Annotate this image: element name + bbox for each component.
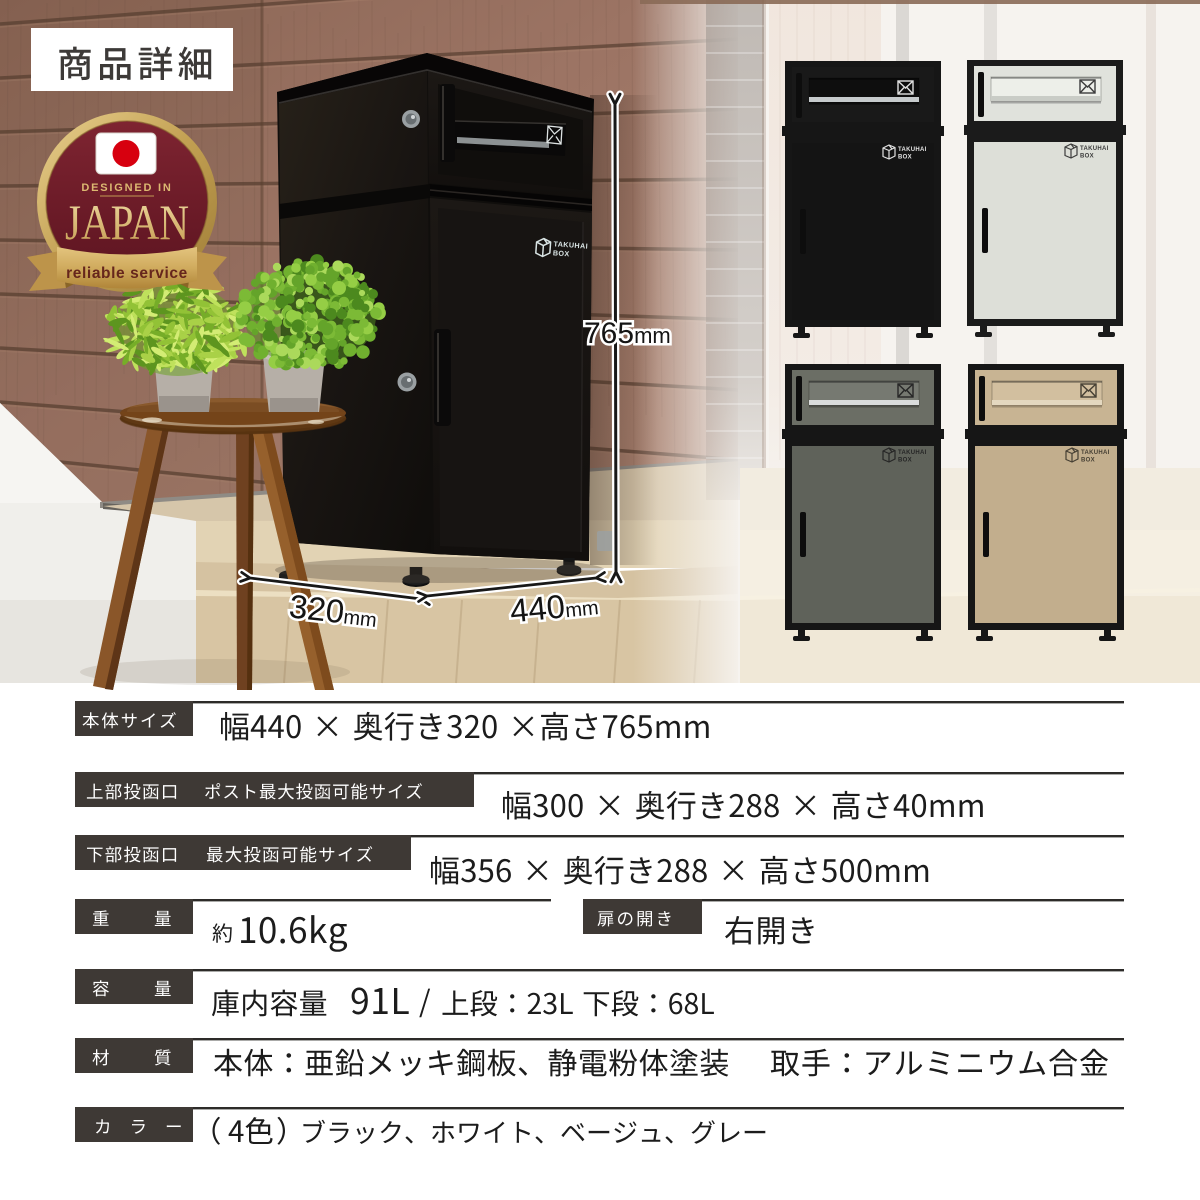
svg-text:TAKUHAI: TAKUHAI	[1081, 450, 1110, 456]
svg-text:BOX: BOX	[898, 458, 912, 464]
svg-text:reliable service: reliable service	[66, 265, 188, 282]
svg-text:BOX: BOX	[1081, 458, 1095, 464]
svg-text:TAKUHAI: TAKUHAI	[898, 450, 927, 456]
svg-text:BOX: BOX	[898, 155, 912, 161]
svg-text:DESIGNED IN: DESIGNED IN	[81, 182, 172, 194]
svg-text:TAKUHAI: TAKUHAI	[898, 147, 927, 153]
svg-text:TAKUHAI: TAKUHAI	[1080, 146, 1109, 152]
svg-text:BOX: BOX	[1080, 154, 1094, 160]
svg-text:BOX: BOX	[553, 248, 570, 258]
svg-text:JAPAN: JAPAN	[65, 194, 189, 250]
